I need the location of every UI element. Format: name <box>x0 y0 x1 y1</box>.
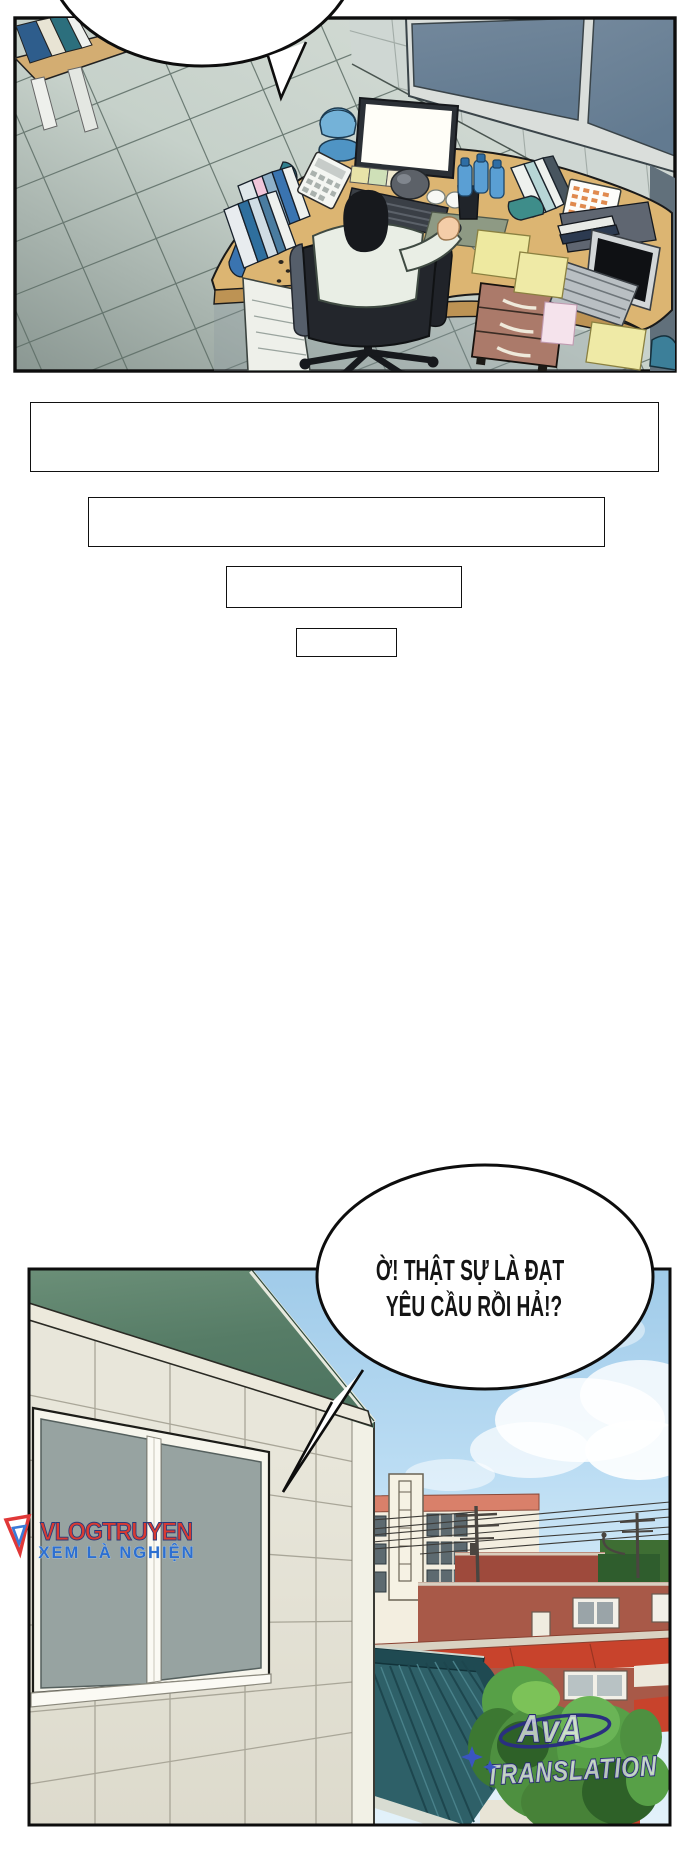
svg-text:YÊU CẦU RỒI HẢ!?: YÊU CẦU RỒI HẢ!? <box>386 1289 562 1323</box>
svg-text:AvA: AvA <box>517 1707 582 1751</box>
svg-text:XEM LÀ NGHIỆN: XEM LÀ NGHIỆN <box>38 1543 195 1562</box>
svg-text:Ờ! THẬT SỰ LÀ ĐẠT: Ờ! THẬT SỰ LÀ ĐẠT <box>376 1254 564 1287</box>
svg-text:VLOGTRUYEN: VLOGTRUYEN <box>40 1518 192 1546</box>
